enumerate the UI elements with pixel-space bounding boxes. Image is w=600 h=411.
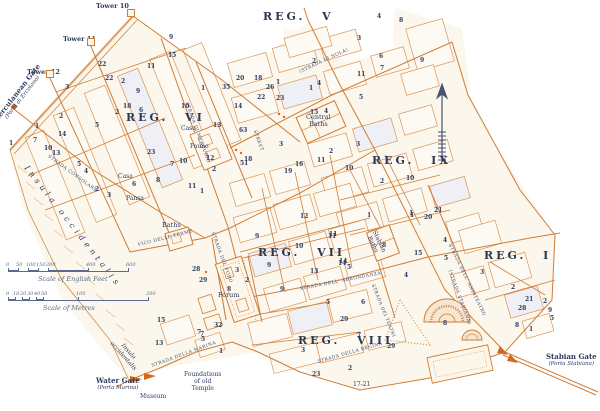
- insula-number: 1: [409, 211, 413, 218]
- insula-number: 9: [280, 287, 284, 294]
- insula-number: 3: [356, 142, 360, 149]
- tower-square: [87, 38, 95, 46]
- scale-english-feet-tick-label: 0: [6, 262, 9, 268]
- insula-number: 3: [65, 85, 69, 92]
- water-gate-line1: Water Gate: [96, 377, 140, 385]
- scale-metres-tick-label: 30: [27, 291, 33, 297]
- street-label-6: (STRADA DI NOLA): [299, 48, 349, 75]
- insula-number: 13: [310, 269, 318, 276]
- insula-number: 5: [444, 256, 448, 263]
- stabian-gate-line2: (Porta Stabiana): [546, 361, 597, 367]
- insula-number: 18: [254, 76, 262, 83]
- scale-metres-tick: [148, 297, 149, 301]
- scale-metres-tick-label: 0: [6, 291, 9, 297]
- insula-number: 19: [284, 169, 292, 176]
- insula-number: 26: [266, 85, 274, 92]
- insula-number: 20: [236, 76, 244, 83]
- insula-number: 23: [276, 96, 284, 103]
- insula-number: 15: [310, 110, 318, 117]
- insula-number: 3: [301, 348, 305, 355]
- insula-number: 4: [377, 14, 381, 21]
- insula-number: 23: [147, 150, 155, 157]
- water-gate: Water Gate(Porta Marina): [96, 377, 140, 391]
- insula-number: 2: [115, 110, 119, 117]
- insula-number: 15: [168, 53, 176, 60]
- street-label-1: STRADA CONSOLARE: [46, 154, 97, 193]
- insula-number: 8: [382, 243, 386, 250]
- scale-english-feet-segment: [8, 270, 18, 272]
- insula-number: 11: [328, 234, 336, 241]
- insula-number: 13: [213, 123, 221, 130]
- insula-number: 10: [406, 176, 414, 183]
- insula-number: 12: [206, 156, 214, 163]
- scale-english-feet-tick-label: 150: [36, 262, 46, 268]
- street-label-2: VICO DELLE TERME: [137, 229, 193, 248]
- insula-occidentalis-small: Insulaoccidentalis: [108, 336, 143, 372]
- water-gate-line2: (Porta Marina): [96, 385, 140, 391]
- insula-number: 1: [201, 86, 205, 93]
- insula-number: 3: [357, 36, 361, 43]
- scale-english-feet-tick-label: 100: [26, 262, 36, 268]
- scale-metres-segment: [22, 299, 29, 301]
- scale-metres-tick: [29, 297, 30, 301]
- insula-number: 3: [279, 142, 283, 149]
- scale-english-feet-tick: [88, 268, 89, 272]
- scale-english-feet-tick: [18, 268, 19, 272]
- insula-number: 7: [380, 66, 384, 73]
- scale-metres-tick-label: 40: [34, 291, 40, 297]
- insula-number: 7: [33, 138, 37, 145]
- insula-number: 1: [200, 189, 204, 196]
- insula-number: 14: [338, 261, 346, 268]
- scale-english-feet-tick: [38, 268, 39, 272]
- insula-number: 21: [434, 208, 442, 215]
- insula-number: 2: [511, 285, 515, 292]
- casa-di-pansa-casa: Casa: [118, 174, 133, 181]
- insula-number: 5: [326, 300, 330, 307]
- insula-number: 9: [548, 308, 552, 315]
- scale-metres-tick-label: 100: [76, 291, 86, 297]
- insula-number: 28: [518, 306, 526, 313]
- scale-metres-segment: [36, 299, 43, 301]
- insula-number: 5: [201, 337, 205, 344]
- insula-number: 29: [199, 278, 207, 285]
- insula-number: 9: [255, 234, 259, 241]
- insula-number: 2: [329, 149, 333, 156]
- insula-number: 22: [98, 62, 106, 69]
- insula-number: 3: [107, 193, 111, 200]
- insula-number: 1: [35, 124, 39, 131]
- region-label-6: REG. I: [484, 250, 551, 263]
- insula-number: 4: [443, 238, 447, 245]
- insula-number: 11: [357, 72, 365, 79]
- insula-number: 2: [245, 278, 249, 285]
- insula-number: 5: [359, 95, 363, 102]
- insula-number: 29: [340, 317, 348, 324]
- insula-number: 8: [515, 323, 519, 330]
- insula-number: 1: [367, 213, 371, 220]
- houses-17-21: 17-21: [353, 382, 370, 389]
- insula-number: 8: [399, 18, 403, 25]
- scale-english-feet-tick-label: 200: [46, 262, 56, 268]
- insula-number: 4: [317, 81, 321, 88]
- insula-number: 11: [317, 158, 325, 165]
- scale-metres-segment: [8, 299, 15, 301]
- insula-number: 3: [235, 268, 239, 275]
- scale-metres-caption: Scale of Metres: [43, 305, 95, 312]
- insula-number: 7: [170, 162, 174, 169]
- insula-number: 2: [543, 299, 547, 306]
- central-baths-line2: Baths: [306, 121, 331, 128]
- region-label-5: REG. IX: [372, 155, 451, 168]
- scale-metres-tick-label: 200: [146, 291, 156, 297]
- insula-number: 2: [312, 59, 316, 66]
- insula-number: 1: [276, 80, 280, 87]
- baths-line1: Baths: [162, 222, 181, 229]
- scale-english-feet-tick-label: 50: [16, 262, 22, 268]
- insula-number: 4: [84, 169, 88, 176]
- scale-english-feet-segment: [48, 270, 88, 272]
- street-label-3: STRADA DEL FORO: [210, 232, 233, 284]
- houses-17-21-line1: 17-21: [353, 382, 370, 389]
- insula-number: 11: [188, 184, 196, 191]
- herculanean-gate: Herculanean Gate(Porta di Ercolano): [0, 63, 47, 128]
- map-labels-layer: REG. VREG. VIREG. VIIREG. VIIIREG. IXREG…: [0, 0, 600, 411]
- insula-number: 6: [139, 108, 143, 115]
- foundations-of-old-temple: Foundationsof oldTemple: [184, 372, 221, 393]
- insula-number: 10: [295, 244, 303, 251]
- street-label-5: STREET: [252, 130, 264, 152]
- insula-number: 15: [414, 251, 422, 258]
- museum-line1: Museum: [140, 394, 166, 401]
- insula-number: 18: [123, 104, 131, 111]
- insula-number: 1: [9, 141, 13, 148]
- insula-number: 23: [312, 372, 320, 379]
- scale-english-feet-tick-label: 400: [86, 262, 96, 268]
- insula-number: 8: [227, 287, 231, 294]
- insula-number: 22: [257, 95, 265, 102]
- tower-label-1: Tower 10: [96, 3, 129, 10]
- baths: Baths: [162, 222, 181, 229]
- insula-number: 18: [244, 157, 252, 164]
- insula-number: 2: [121, 79, 125, 86]
- insula-number: 1: [309, 86, 313, 93]
- insula-number: 2: [212, 167, 216, 174]
- insula-number: 14: [234, 104, 242, 111]
- insula-number: 5: [95, 123, 99, 130]
- insula-number: 63: [239, 128, 247, 135]
- insula-number: 2: [95, 187, 99, 194]
- scale-english-feet-caption: Scale of English Feet: [38, 276, 108, 283]
- insula-number: 4: [404, 273, 408, 280]
- insula-number: 8: [443, 321, 447, 328]
- foundations-of-old-temple-line3: Temple: [184, 386, 221, 393]
- museum: Museum: [140, 394, 166, 401]
- insula-number: 2: [59, 114, 63, 121]
- insula-number: 9: [136, 89, 140, 96]
- insula-number: 4: [324, 109, 328, 116]
- insula-number: 28: [192, 267, 200, 274]
- insula-number: 22: [105, 76, 113, 83]
- insula-number: 6: [379, 54, 383, 61]
- scale-metres-tick-label: 20: [20, 291, 26, 297]
- insula-number: 7: [357, 333, 361, 340]
- scale-metres-tick: [43, 297, 44, 301]
- casa-di-pansa-pansa: Pansa: [126, 196, 144, 203]
- insula-number: 35: [222, 85, 230, 92]
- insula-number: 5: [347, 265, 351, 272]
- stabian-gate: Stabian Gate(Porta Stabiana): [546, 353, 597, 367]
- scale-english-feet-segment: [28, 270, 38, 272]
- pompeii-map: REG. VREG. VIREG. VIIREG. VIIIREG. IXREG…: [0, 0, 600, 411]
- insula-number: 5: [550, 316, 554, 323]
- street-label-12: STRADA DEI TEATRI: [370, 284, 396, 339]
- insula-number: 6: [361, 300, 365, 307]
- casa-di-pansa-casa-line1: Casa: [118, 174, 133, 181]
- insula-number: 9: [420, 58, 424, 65]
- insula-number: 2: [348, 366, 352, 373]
- insula-number: 12: [300, 214, 308, 221]
- insula-number: 3: [480, 270, 484, 277]
- insula-number: 9: [267, 263, 271, 270]
- insula-number: 10: [181, 104, 189, 111]
- insula-number: 14: [58, 132, 66, 139]
- insula-number: 32: [214, 323, 222, 330]
- insula-number: 10: [345, 166, 353, 173]
- insula-number: 1: [219, 349, 223, 356]
- insula-number: 5: [77, 162, 81, 169]
- insula-number: 15: [157, 318, 165, 325]
- insula-number: 16: [295, 162, 303, 169]
- scale-metres-tick-label: 10: [13, 291, 19, 297]
- insula-number: 9: [169, 35, 173, 42]
- stabian-gate-line1: Stabian Gate: [546, 353, 597, 361]
- insula-number: 10: [179, 159, 187, 166]
- insula-number: 8: [156, 178, 160, 185]
- insula-number: 6: [132, 182, 136, 189]
- scale-english-feet-tick-label: 600: [126, 262, 136, 268]
- insula-number: 2: [380, 179, 384, 186]
- scale-metres-tick: [78, 297, 79, 301]
- insula-number: 20: [424, 215, 432, 222]
- insula-number: 1: [529, 327, 533, 334]
- tower-square: [127, 9, 135, 17]
- scale-english-feet-tick: [128, 268, 129, 272]
- region-label-1: REG. V: [263, 11, 334, 24]
- insula-number: 21: [525, 297, 533, 304]
- scale-metres-tick: [15, 297, 16, 301]
- casa-di-pansa-pansa-line1: Pansa: [126, 196, 144, 203]
- insula-number: 29: [387, 344, 395, 351]
- insula-number: 13: [52, 151, 60, 158]
- scale-metres-tick-label: 50: [41, 291, 47, 297]
- insula-number: 13: [155, 341, 163, 348]
- insula-number: 11: [147, 64, 155, 71]
